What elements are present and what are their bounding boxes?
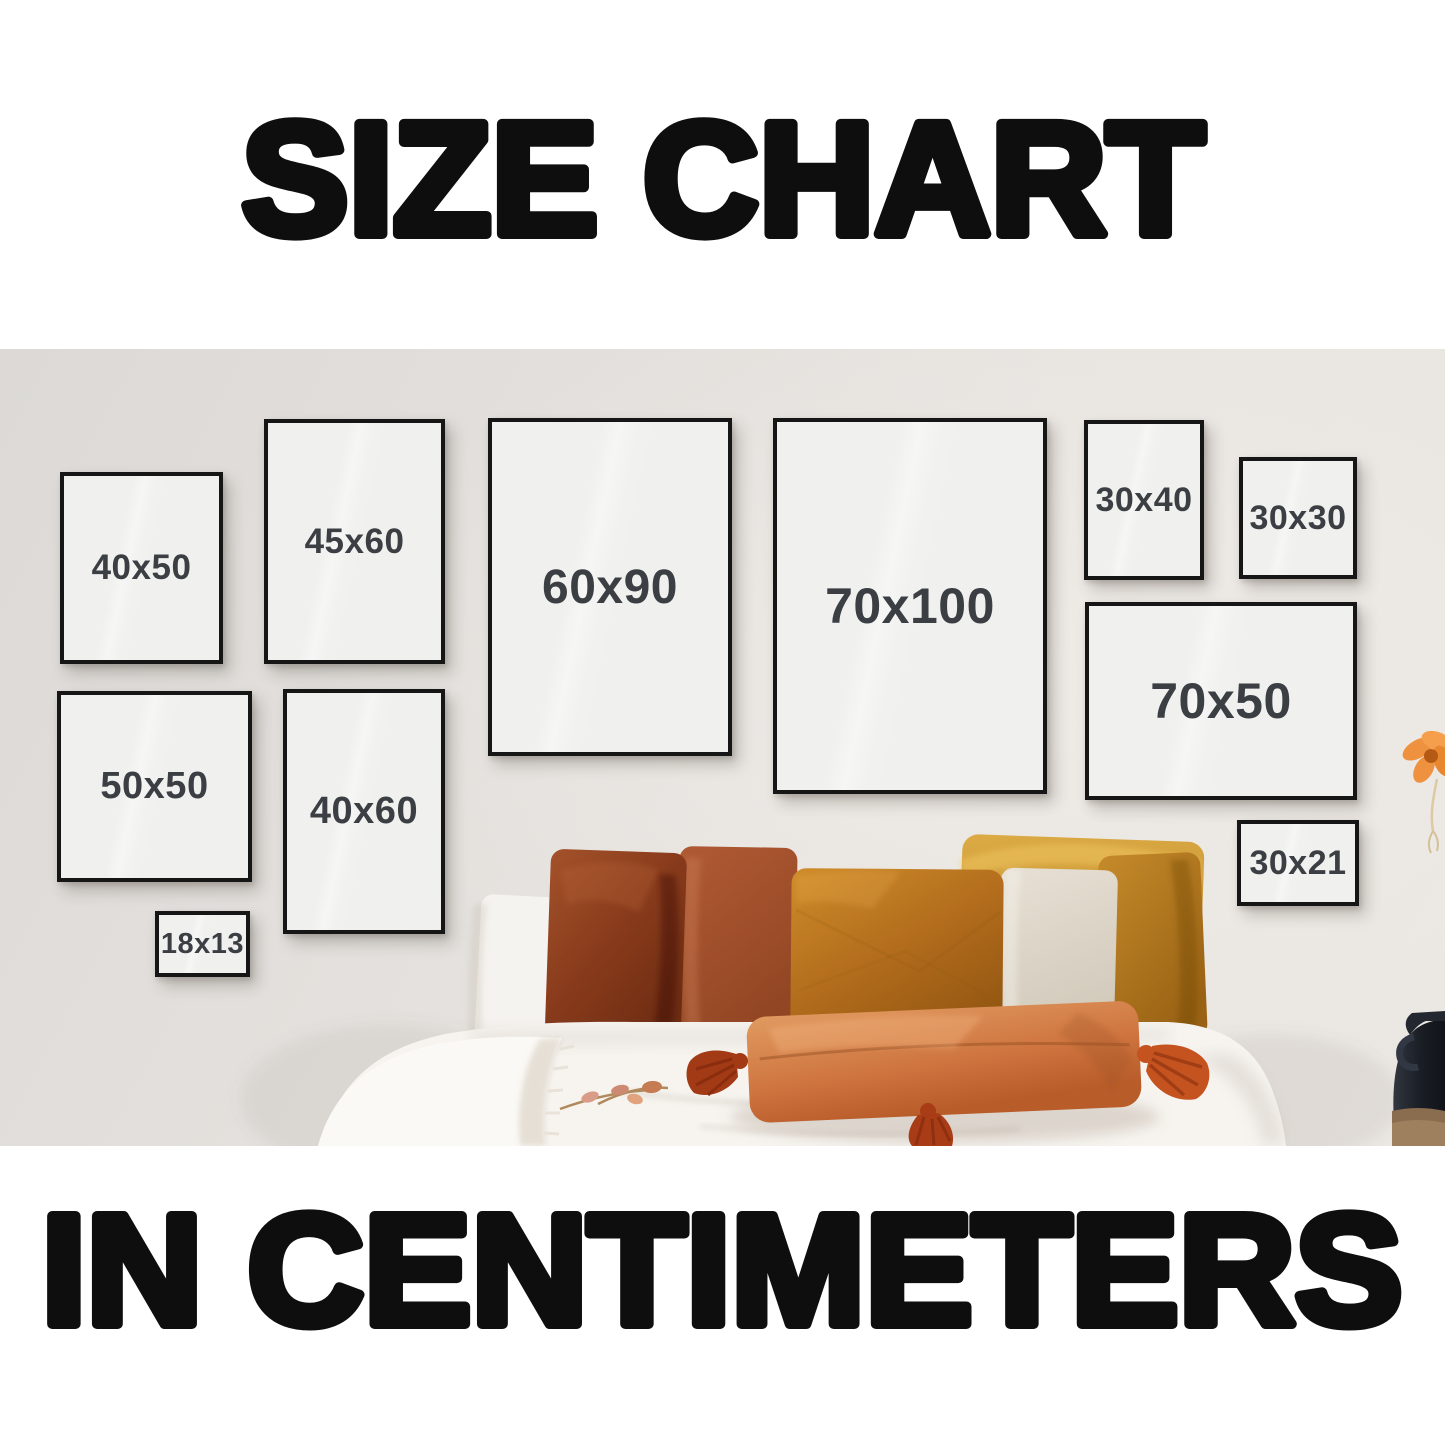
svg-text:SIZE CHART: SIZE CHART xyxy=(242,89,1205,268)
svg-text:IN CENTIMETERS: IN CENTIMETERS xyxy=(42,1183,1403,1358)
